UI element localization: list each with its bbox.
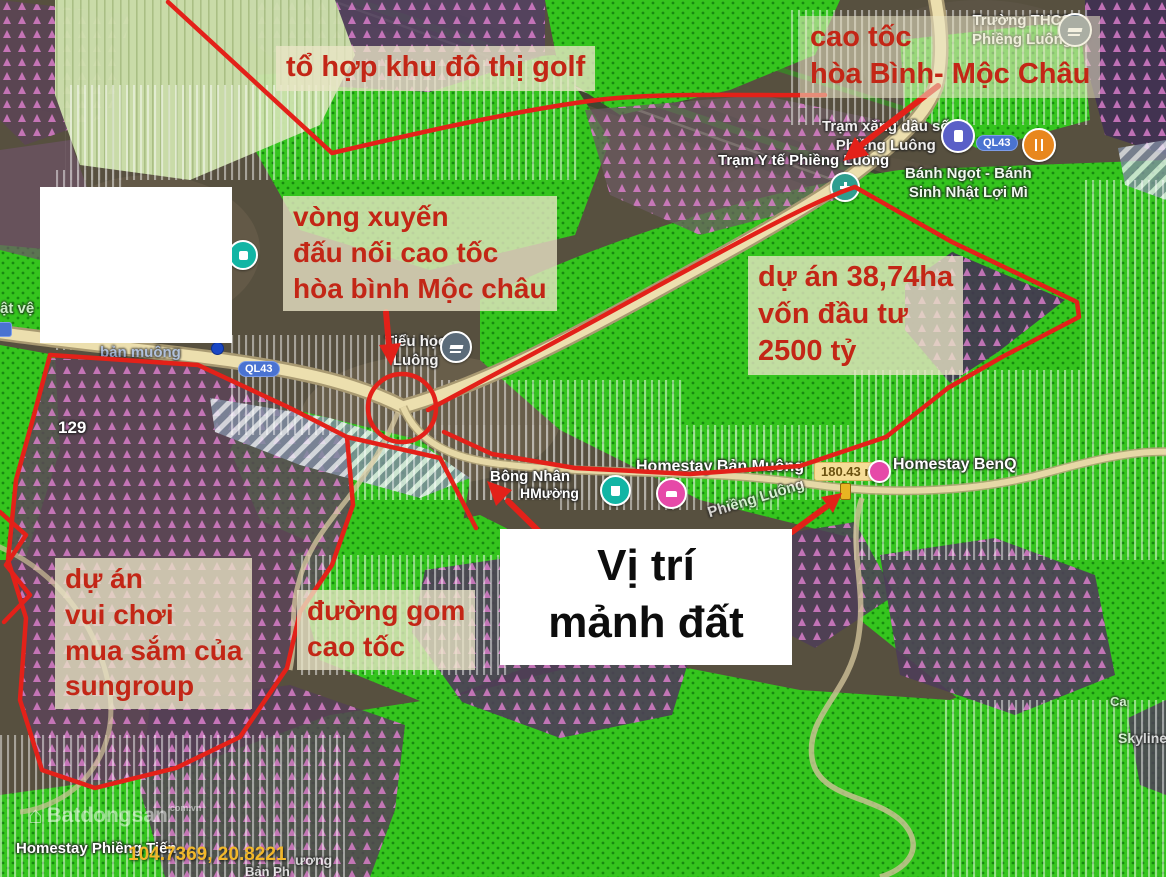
label-bakery-line2: Sinh Nhật Lợi Mì [905, 184, 1032, 203]
annotation-sungroup-line3: mua sắm của [65, 633, 242, 669]
label-store-bong-nhan-line2: HMường [520, 485, 579, 501]
label-health-station: Trạm Y tế Phiềng Luông [718, 152, 889, 169]
annotation-frontage-line2: cao tốc [307, 629, 465, 665]
watermark: ⌂ Batdongsan com.vn [28, 802, 203, 830]
blue-dot-icon [211, 342, 224, 355]
blank-white-box [40, 187, 232, 343]
annotation-frontage-line1: đường gom [307, 593, 465, 629]
label-homestay-ban-muong: Homestay Bản Muông [636, 458, 804, 476]
label-bakery-line1: Bánh Ngọt - Bánh [905, 165, 1032, 184]
school-icon [440, 331, 472, 363]
annotation-project-line1: dự án 38,74ha [758, 259, 953, 296]
road-badge-ql43-left: QL43 [238, 361, 280, 377]
annotation-sungroup-line4: sungroup [65, 668, 242, 704]
annotation-roundabout: vòng xuyến đấu nối cao tốc hòa bình Mộc … [283, 196, 557, 311]
label-store-bong-nhan-line1: Bông Nhân [490, 468, 570, 485]
watermark-brand: Batdongsan [47, 804, 168, 828]
label-gas-station: Trạm xăng dầu số Phiềng Luông [822, 118, 950, 156]
gas-station-icon [941, 119, 975, 153]
label-primary-school: Tiểu học Luông [385, 333, 446, 371]
annotation-roundabout-line1: vòng xuyến [293, 199, 547, 235]
annotation-location-line1: Vị trí [500, 537, 792, 594]
road-badge-partial [0, 322, 12, 337]
annotation-project-line3: 2500 tỷ [758, 333, 953, 370]
annotated-map-image: Trường THCS Phiềng Luông Trạm xăng dầu s… [0, 0, 1166, 877]
label-road-phieng-luong: Phiềng Luông [706, 476, 807, 521]
poi-dot-icon [228, 240, 258, 270]
label-primary-school-line1: Tiểu học [385, 333, 446, 352]
label-road-ban-muong: bản muông [100, 344, 181, 361]
store-marker-icon [600, 475, 631, 506]
annotation-golf: tổ hợp khu đô thị golf [276, 46, 595, 91]
annotation-expressway-line1: cao tốc [810, 19, 1090, 56]
label-bottom-partial-2: Bản Ph [245, 864, 290, 877]
plot-pin-icon [840, 483, 851, 500]
map-labels-layer: Trường THCS Phiềng Luông Trạm xăng dầu s… [0, 0, 1166, 877]
label-plot-number: 129 [58, 418, 86, 438]
homestay-marker-icon [656, 478, 687, 509]
annotation-golf-text: tổ hợp khu đô thị golf [286, 49, 585, 86]
annotation-location: Vị trí mảnh đất [500, 529, 792, 665]
annotation-location-line2: mảnh đất [500, 594, 792, 651]
home-watermark-icon: ⌂ [28, 802, 43, 830]
annotation-sungroup-line2: vui chơi [65, 597, 242, 633]
clinic-marker-icon [830, 172, 860, 202]
restaurant-icon [1022, 128, 1056, 162]
label-bakery: Bánh Ngọt - Bánh Sinh Nhật Lợi Mì [905, 165, 1032, 203]
label-bottom-partial-1: ương [295, 852, 332, 868]
label-gas-line1: Trạm xăng dầu số [822, 118, 950, 137]
label-homestay-benq: Homestay BenQ [893, 456, 1017, 474]
label-skyline: Skyline [1118, 730, 1166, 746]
label-left-partial: ật vệ [0, 300, 34, 317]
annotation-sungroup-line1: dự án [65, 561, 242, 597]
annotation-expressway-line2: hòa Bình- Mộc Châu [810, 56, 1090, 93]
annotation-roundabout-line3: hòa bình Mộc châu [293, 271, 547, 307]
watermark-suffix: com.vn [170, 803, 202, 813]
label-ca-partial: Ca [1110, 694, 1127, 709]
road-badge-ql43-top: QL43 [976, 135, 1018, 151]
label-primary-school-line2: Luông [385, 352, 446, 371]
annotation-frontage: đường gom cao tốc [297, 590, 475, 670]
annotation-expressway: cao tốc hòa Bình- Mộc Châu [800, 16, 1100, 98]
annotation-project: dự án 38,74ha vốn đầu tư 2500 tỷ [748, 256, 963, 375]
coordinates-text: 104.7369, 20.8221 [128, 844, 287, 866]
annotation-roundabout-line2: đấu nối cao tốc [293, 235, 547, 271]
annotation-project-line2: vốn đầu tư [758, 296, 953, 333]
homestay-marker-icon [868, 460, 891, 483]
annotation-sungroup: dự án vui chơi mua sắm của sungroup [55, 558, 252, 709]
